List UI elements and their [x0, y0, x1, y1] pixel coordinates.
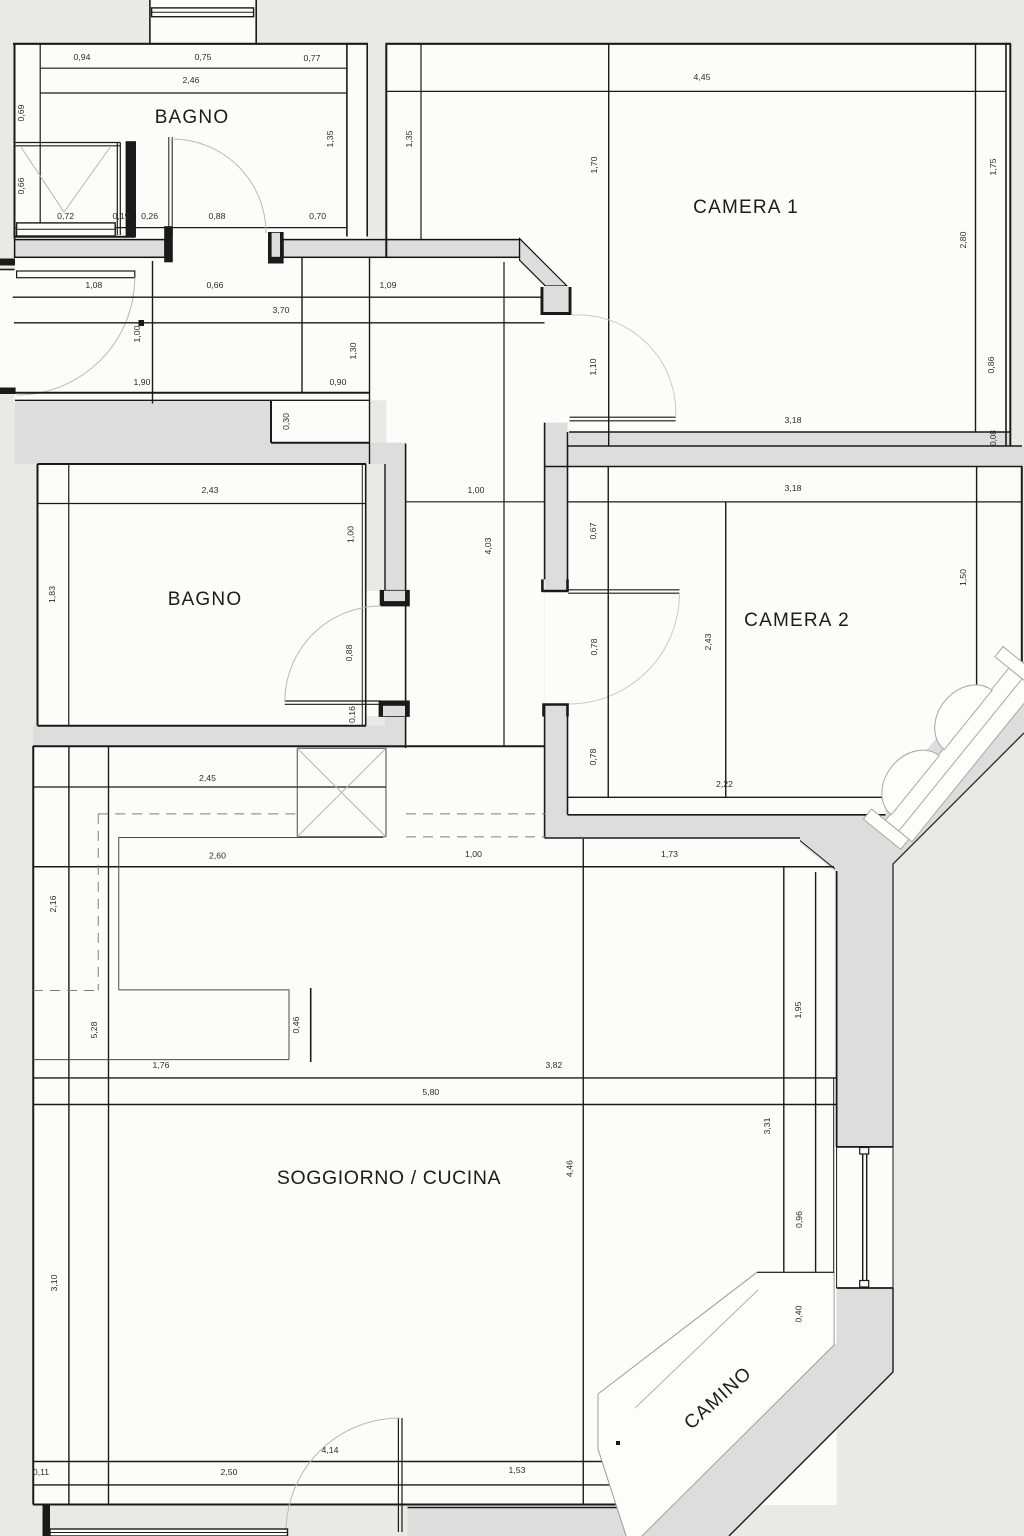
svg-text:1,35: 1,35: [404, 130, 414, 147]
svg-text:1,09: 1,09: [380, 280, 397, 290]
svg-text:1,08: 1,08: [85, 280, 102, 290]
svg-text:1,30: 1,30: [348, 342, 358, 359]
svg-text:1,53: 1,53: [509, 1465, 526, 1475]
svg-text:4,14: 4,14: [322, 1445, 339, 1455]
svg-text:0,88: 0,88: [344, 644, 354, 661]
svg-text:0,90: 0,90: [330, 377, 347, 387]
svg-text:1,00: 1,00: [465, 849, 482, 859]
svg-text:0,69: 0,69: [16, 104, 26, 121]
svg-text:0,78: 0,78: [589, 638, 599, 655]
svg-text:5,28: 5,28: [89, 1021, 99, 1038]
svg-text:0,75: 0,75: [195, 52, 212, 62]
svg-text:1,90: 1,90: [134, 377, 151, 387]
svg-text:2,45: 2,45: [199, 773, 216, 783]
svg-text:1,95: 1,95: [793, 1001, 803, 1018]
svg-text:3,10: 3,10: [49, 1274, 59, 1291]
svg-text:0,11: 0,11: [33, 1467, 49, 1477]
svg-text:0,67: 0,67: [588, 522, 598, 539]
svg-text:5,80: 5,80: [422, 1087, 439, 1097]
svg-text:0,40: 0,40: [794, 1305, 804, 1322]
svg-text:3,70: 3,70: [273, 305, 290, 315]
svg-text:0,88: 0,88: [209, 211, 226, 221]
svg-text:0,16: 0,16: [347, 706, 357, 723]
svg-text:1,10: 1,10: [588, 358, 598, 375]
svg-text:0,86: 0,86: [986, 356, 996, 373]
svg-text:CAMERA 1: CAMERA 1: [693, 197, 799, 218]
svg-text:1,00: 1,00: [468, 485, 485, 495]
svg-text:0,78: 0,78: [588, 748, 598, 765]
svg-text:1,35: 1,35: [325, 130, 335, 147]
svg-text:0,96: 0,96: [794, 1211, 804, 1228]
svg-text:2,80: 2,80: [958, 231, 968, 248]
svg-text:3,18: 3,18: [785, 483, 802, 493]
svg-text:1,73: 1,73: [661, 849, 678, 859]
svg-text:2,22: 2,22: [716, 779, 733, 789]
svg-text:CAMERA 2: CAMERA 2: [744, 610, 850, 631]
svg-text:2,43: 2,43: [703, 633, 713, 650]
svg-text:4,45: 4,45: [694, 72, 711, 82]
svg-text:1,70: 1,70: [589, 156, 599, 173]
svg-text:0,08: 0,08: [989, 430, 998, 446]
svg-text:1,75: 1,75: [988, 158, 998, 175]
svg-text:BAGNO: BAGNO: [168, 589, 243, 610]
svg-text:0,77: 0,77: [304, 53, 321, 63]
svg-text:0,46: 0,46: [291, 1016, 301, 1033]
svg-text:0,26: 0,26: [141, 211, 158, 221]
svg-text:0,66: 0,66: [16, 177, 26, 194]
svg-text:1,76: 1,76: [153, 1060, 170, 1070]
svg-text:4,03: 4,03: [483, 537, 493, 554]
svg-text:BAGNO: BAGNO: [155, 107, 230, 128]
svg-text:2,43: 2,43: [202, 485, 219, 495]
svg-text:1,83: 1,83: [47, 586, 57, 603]
svg-text:4,46: 4,46: [565, 1160, 575, 1177]
svg-text:1,50: 1,50: [958, 569, 968, 586]
svg-text:1,00: 1,00: [132, 325, 142, 342]
svg-text:0,70: 0,70: [309, 211, 326, 221]
svg-text:0,72: 0,72: [57, 211, 74, 221]
svg-text:0,66: 0,66: [207, 280, 224, 290]
svg-text:0,30: 0,30: [281, 413, 291, 430]
svg-text:3,18: 3,18: [785, 415, 802, 425]
svg-text:2,46: 2,46: [183, 75, 200, 85]
svg-text:1,00: 1,00: [346, 526, 356, 543]
svg-text:0,94: 0,94: [74, 52, 91, 62]
svg-text:SOGGIORNO / CUCINA: SOGGIORNO / CUCINA: [277, 1167, 501, 1189]
svg-text:2,60: 2,60: [209, 851, 226, 861]
svg-text:2,50: 2,50: [221, 1467, 238, 1477]
svg-text:3,31: 3,31: [762, 1117, 772, 1134]
svg-text:0,19: 0,19: [113, 211, 130, 221]
svg-text:3,82: 3,82: [545, 1060, 562, 1070]
svg-text:2,16: 2,16: [48, 895, 58, 912]
